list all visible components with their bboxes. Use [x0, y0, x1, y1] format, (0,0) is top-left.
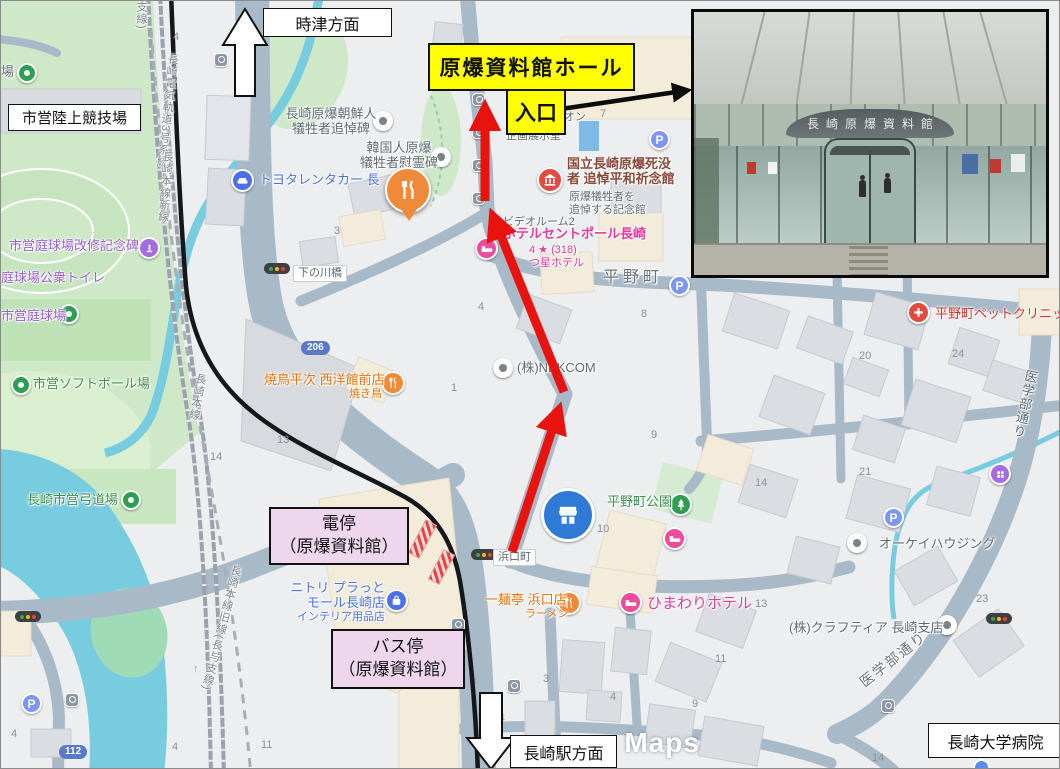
poi-label-nitori[interactable]: ニトリ プラっと モール長崎店 — [279, 581, 385, 611]
block-number: 8 — [641, 308, 647, 320]
poi-label-okei-housing[interactable]: オーケイハウジング — [879, 537, 995, 552]
poi-label-tennis-toilet[interactable]: 庭球場公衆トイレ — [1, 271, 105, 286]
poi-sublabel-national-memorial-hall[interactable]: 原爆犠牲者を 追悼する記念館 — [569, 191, 646, 216]
rail-label-partial-branch: 支線) — [133, 1, 149, 30]
car-rental-icon[interactable] — [231, 169, 254, 192]
bridge-chip-shimonokawabashi: 下の川橋 — [293, 265, 347, 282]
direction-north-box: 時津方面 — [263, 8, 392, 37]
poi-label-video-room[interactable]: ビデオルーム2 — [503, 216, 575, 229]
block-number: 11 — [715, 653, 726, 665]
tram-stop-icon[interactable] — [472, 126, 485, 139]
poi-sublabel-nitori[interactable]: インテリア用品店 — [279, 611, 385, 624]
route-badge-206: 206 — [301, 341, 330, 355]
block-number: 4 — [173, 31, 179, 43]
traffic-light-icon — [15, 611, 41, 622]
photo-person — [859, 180, 866, 197]
direction-south-box: 長崎駅方面 — [510, 735, 617, 768]
parking-icon[interactable]: P — [21, 693, 42, 714]
poi-label-hiranomachi-park[interactable]: 平野町公園 — [607, 495, 672, 510]
hall-callout-box: 原爆資料館ホール — [428, 43, 635, 91]
block-number: 4 — [478, 301, 484, 313]
oneway-arrow-icon: ↓ — [206, 718, 212, 730]
oneway-arrow-icon: ↓ — [501, 711, 507, 723]
bus-stop-icon[interactable] — [881, 699, 895, 713]
poi-label-pet-clinic[interactable]: 平野町ペットクリニック — [935, 307, 1060, 322]
photo-poster — [1011, 154, 1025, 172]
hospital-label-box: 長崎大学病院 — [928, 723, 1060, 758]
museum-entrance-photo: 長崎原爆資料館 — [691, 9, 1049, 278]
block-number: 9 — [651, 429, 657, 441]
himawari-hotel-icon[interactable] — [619, 591, 642, 614]
rail-label-old-nagayo-branch: 長崎本線旧線(長与支線) — [198, 563, 245, 692]
block-number: 9 — [692, 698, 698, 710]
oneway-arrow-icon: ↑ — [473, 675, 479, 687]
photo-notice — [990, 159, 1001, 173]
parking-icon[interactable]: P — [649, 129, 670, 150]
guide-map[interactable]: P P P P 場 市営庭球場改修記念碑 庭球場公衆トイレ 市営庭球場 市営ソフ… — [0, 0, 1060, 769]
kyudo-hall-marker[interactable] — [121, 490, 141, 510]
route-badge-112: 112 — [59, 745, 87, 759]
traffic-light-icon — [264, 263, 290, 274]
park-tree-icon[interactable] — [669, 493, 692, 516]
poi-label-tennis-monument[interactable]: 市営庭球場改修記念碑 — [9, 239, 139, 254]
block-number: 24 — [952, 348, 964, 360]
rail-label-main-line: 長崎本線 — [185, 372, 209, 422]
softball-field-marker[interactable] — [11, 375, 31, 395]
traffic-light-icon — [986, 613, 1012, 624]
block-number: 14 — [872, 752, 884, 764]
photo-revolving-door — [824, 138, 916, 243]
street-label-igakubu-dori-s: 医学部通り — [855, 626, 930, 691]
photo-person — [884, 178, 891, 193]
block-number: 3 — [543, 673, 549, 685]
poi-label-softball[interactable]: 市営ソフトボール場 — [33, 377, 150, 392]
tram-stop-icon[interactable] — [472, 93, 485, 106]
photo-canopy — [694, 12, 1046, 107]
oneway-arrow-icon: ↑ — [193, 663, 199, 675]
okei-housing-marker[interactable] — [847, 533, 867, 553]
block-number: 4 — [11, 728, 17, 740]
horaiken-restaurant-pin[interactable] — [385, 167, 431, 213]
tram-platform — [408, 519, 437, 559]
bus-stop-callout-box: バス停 （原爆資料館） — [331, 629, 465, 689]
purple-poi-icon[interactable] — [989, 463, 1011, 485]
tram-stop-icon[interactable] — [472, 192, 485, 205]
tram-stop-icon[interactable] — [507, 679, 521, 693]
block-number: 1 — [451, 382, 457, 394]
photo-poster — [962, 154, 978, 174]
poi-sublabel-hotel-stpaul[interactable]: 4 ★ (318) つ星ホテル — [529, 244, 584, 269]
parking-icon[interactable]: P — [669, 275, 690, 296]
poi-label-tennis-court[interactable]: 市営庭球場 — [1, 309, 66, 324]
bus-stop-icon[interactable] — [214, 53, 228, 67]
poi-label-nekcom[interactable]: (株)NEKCOM — [517, 361, 596, 376]
street-label-hiranomachi: 平野町 — [603, 263, 663, 287]
block-number: 10 — [597, 523, 609, 535]
photo-notice — [768, 162, 777, 174]
poi-label-national-memorial-hall[interactable]: 国立長崎原爆死没 者 追悼平和祈念館 — [567, 157, 675, 187]
poi-label-himawari-hotel[interactable]: ひまわりホテル — [647, 595, 752, 612]
poi-label-partial-on[interactable]: オン — [564, 111, 586, 124]
block-number: 13 — [277, 434, 289, 446]
poi-sublabel-ichimentei[interactable]: ラーメン — [525, 608, 569, 621]
block-number: 23 — [976, 593, 988, 605]
block-number: 4 — [610, 691, 616, 703]
bus-stop-icon[interactable] — [65, 693, 79, 707]
block-number: 21 — [859, 466, 871, 478]
tram-stop-callout-box: 電停 （原爆資料館） — [269, 507, 409, 565]
block-number: 3 — [334, 225, 340, 237]
photo-notice — [747, 162, 756, 174]
block-number: 11 — [261, 739, 272, 751]
pet-clinic-icon[interactable] — [907, 301, 930, 324]
nekcom-marker[interactable] — [493, 358, 513, 378]
poi-sublabel-yakitori[interactable]: 焼き鳥 — [349, 388, 382, 401]
tram-platform — [428, 549, 455, 585]
monument-icon[interactable] — [138, 237, 160, 259]
block-number: 4 — [172, 741, 178, 753]
memorial-hall-icon[interactable] — [537, 167, 563, 193]
block-number: 14 — [755, 477, 767, 489]
poi-label-yakitori[interactable]: 焼鳥平次 西洋館前店 — [264, 373, 385, 388]
poi-label-korean-memorial[interactable]: 韓国人原爆 犠牲者慰霊碑 — [357, 141, 441, 171]
poi-label-kyudo[interactable]: 長崎市営弓道場 — [27, 493, 118, 508]
hotel-stpaul-icon[interactable] — [475, 237, 498, 260]
lawson-store-icon[interactable] — [541, 488, 595, 542]
photo-pavement — [694, 243, 1046, 277]
stadium-label-box: 市営陸上競技場 — [8, 104, 141, 131]
block-number: 20 — [859, 350, 871, 362]
nitori-bag-icon[interactable] — [385, 589, 408, 612]
poi-label-hotel-stpaul[interactable]: ホテルセントポール長崎 — [503, 227, 646, 242]
tram-stop-icon[interactable] — [472, 159, 485, 172]
photo-shrub — [694, 138, 719, 243]
block-number: 14 — [210, 451, 222, 463]
street-label-igakubu-dori-n: 医学部通り — [1008, 368, 1041, 440]
poi-label-ichimentei[interactable]: 一麺亭 浜口店 — [485, 593, 567, 608]
poi-label-partial-field[interactable]: 場 — [1, 65, 14, 80]
block-number: 7 — [600, 108, 606, 120]
block-number: 13 — [755, 598, 767, 610]
poi-label-toyota-rentacar[interactable]: トヨタレンタカー 長 — [259, 173, 380, 188]
poi-label-korean-memorial-north[interactable]: 長崎原爆朝鮮人 犠牲者追悼碑 — [279, 107, 383, 137]
street-chip-hamaguchimachi: 浜口町 — [493, 549, 536, 566]
poi-dot[interactable] — [973, 759, 990, 769]
hotel-icon-unlabeled[interactable] — [663, 527, 686, 550]
parking-icon[interactable]: P — [883, 507, 904, 528]
athletics-field-marker[interactable] — [17, 63, 37, 83]
entrance-callout-box: 入口 — [506, 89, 566, 135]
